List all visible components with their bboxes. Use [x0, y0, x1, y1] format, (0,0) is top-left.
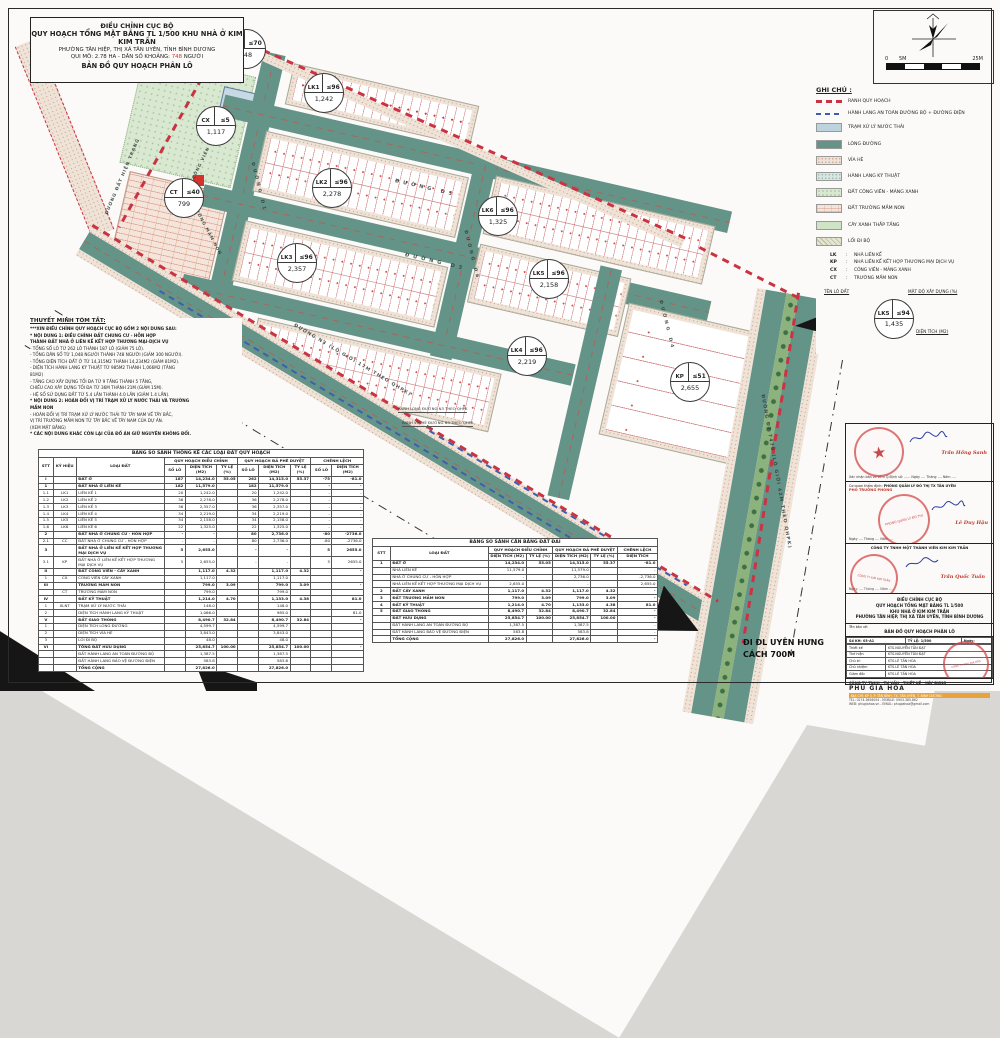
parcel-circle-lk6: LK6≤961,325: [478, 196, 518, 236]
callout-label: RANH VỈA HÈ ĐƯỜNG N3 THEO QHPK: [402, 420, 473, 427]
legend-item: LỐI ĐI BỘ: [816, 237, 998, 246]
legend-item: LÒNG ĐƯỜNG: [816, 140, 998, 149]
table-row: NHÀ LIÊN KẾ KẾT HỢP THƯƠNG MẠI DỊCH VỤ2,…: [373, 581, 658, 588]
authority-signature: [908, 430, 948, 446]
legend-item: CÂY XANH THẤP TẦNG: [816, 221, 998, 230]
parcel-circle-lk4: LK4≤962,219: [507, 336, 547, 376]
agency-sign-name: Lê Duy Hậu: [955, 520, 988, 526]
title-line4: QUI MÔ: 2.78 HA - DÂN SỐ KHOẢNG: 748 NGƯ…: [31, 54, 243, 60]
parcel-circle-kp: KP≤512,655: [670, 362, 710, 402]
table-row: IIĐẤT CÔNG VIÊN - CÂY XANH1,117.04.321,1…: [39, 568, 364, 575]
table-row: 3LỐI ĐI BỘ48.048.0: [39, 637, 364, 644]
callout-label: RANH LÒNG ĐƯỜNG N3 THEO QHPK: [398, 406, 467, 413]
notes-title: THUYẾT MINH TÓM TẮT:: [30, 318, 242, 324]
dashblue-swatch-icon: [816, 113, 842, 115]
title-block: ĐIỀU CHỈNH CỤC BỘ QUY HOẠCH TỔNG MẶT BẰN…: [30, 17, 244, 83]
authority-stamp: ★: [851, 424, 907, 480]
table-row: CTTRƯỜNG MẦM NON799.0799.0: [39, 589, 364, 596]
legend-item: ĐẤT TRƯỜNG MẦM NON: [816, 204, 998, 213]
table-row: 1.1LK1LIÊN KẾ 1201,242.0201,242.0--: [39, 490, 364, 497]
authority-sign-name: Trần Hồng Sanh: [941, 450, 987, 456]
agency-name: PHÒNG QUẢN LÝ ĐÔ THỊ TX TÂN UYÊN: [884, 484, 956, 488]
approval-drawing-name: Tên bản vẽ: BẢN ĐỒ QUY HOẠCH PHÂN LÔ: [846, 624, 993, 637]
note-line: - TỔNG SỐ LÔ TỪ 262 LÔ THÀNH 187 LÔ (GIẢ…: [30, 346, 242, 351]
table-row: 1.3LK3LIÊN KẾ 3362,357.0362,357.0--: [39, 504, 364, 511]
table-row: NHÀ LIÊN KẾ11,579.011,579.0-: [373, 567, 658, 574]
agency-signature: [930, 500, 966, 514]
approval-row-agency: Cơ quan thẩm định: PHÒNG QUẢN LÝ ĐÔ THỊ …: [846, 482, 993, 544]
roadc-swatch-icon: [816, 140, 842, 149]
legend-title: GHI CHÚ :: [816, 86, 998, 94]
approval-row-authority: ★ Trần Hồng Sanh Xác nhận bản vẽ kèm Q.Đ…: [846, 424, 993, 482]
note-line: VỊ TRÍ TRƯỜNG MẦM NON TỪ TÂY BẮC VỀ TÂY …: [30, 418, 242, 423]
parcel-circle-lk5: LK5≤962,158: [529, 259, 569, 299]
land-statistics-table: BẢNG SO SÁNH THỐNG KÊ CÁC LOẠI ĐẤT QUY H…: [38, 449, 364, 672]
legend-item: RANH QUY HOẠCH: [816, 99, 998, 104]
legend-item: VỈA HÈ: [816, 156, 998, 165]
legend-example-circle: LK5≤94 1,435: [874, 299, 914, 339]
note-line: * NỘI DUNG 2: HOÁN ĐỔI VỊ TRÍ TRẠM XỬ LÝ…: [30, 398, 242, 403]
legend-abbrev: CX:CÔNG VIÊN - MẢNG XANH: [816, 268, 998, 273]
direction-note: ĐI ĐL UYÊN HƯNG CÁCH 700M: [743, 637, 824, 661]
lowgreen-swatch-icon: [816, 221, 842, 230]
owner-stamp: CÔNG TY KIM KIM TRẦN: [846, 550, 902, 594]
table-row: 2DIỆN TÍCH HÀNH LANG KỸ THUẬT1,066.0985.…: [39, 610, 364, 617]
note-line: CHIỀU CAO XÂY DỰNG TỐI ĐA TỪ 36M THÀNH 2…: [30, 385, 242, 390]
owner-sign-name: Trần Quốc Tuấn: [941, 574, 986, 580]
note-line: - HOÁN ĐỔI VỊ TRÍ TRẠM XỬ LÝ NƯỚC THẢI T…: [30, 412, 242, 417]
tech-swatch-icon: [816, 172, 842, 181]
title-line1: ĐIỀU CHỈNH CỤC BỘ: [31, 22, 243, 30]
table-row: IĐẤT Ở18714,234.055.0526214,315.055.37-7…: [39, 476, 364, 483]
legend-abbrev: KP:NHÀ LIÊN KẾ KẾT HỢP THƯƠNG MẠI DỊCH V…: [816, 260, 998, 265]
company-web: WEB: phugiahoa.vn - EMAIL: phugiahoa@gma…: [849, 702, 990, 706]
parkland-swatch-icon: [816, 188, 842, 197]
brickp-swatch-icon: [816, 204, 842, 213]
legend-abbrevs: LK:NHÀ LIÊN KẾKP:NHÀ LIÊN KẾ KẾT HỢP THƯ…: [816, 253, 998, 281]
legend-panel: GHI CHÚ : RANH QUY HOẠCHHÀNH LANG AN TOÀ…: [816, 86, 998, 354]
table-row: TỔNG CỘNG27,826.027,826.0: [39, 665, 364, 672]
parcel-circle-lk1: LK1≤961,242: [304, 73, 344, 113]
sidewalk-swatch-icon: [816, 156, 842, 165]
table-row: TỔNG CỘNG27,826.027,826.0-: [373, 636, 658, 643]
legend-items: RANH QUY HOẠCHHÀNH LANG AN TOÀN ĐƯỜNG BỘ…: [816, 99, 998, 246]
title-line5: BẢN ĐỒ QUY HOẠCH PHÂN LÔ: [31, 62, 243, 70]
agency-stamp: PHÒNG QUẢN LÝ ĐÔ THỊ: [872, 488, 935, 544]
note-line: * NỘI DUNG 1: ĐIỀU CHỈNH ĐẤT CHUNG CƯ - …: [30, 333, 242, 338]
wwtp-swatch-icon: [816, 123, 842, 132]
table-row: ĐẤT HÀNH LANG AN TOÀN ĐƯỜNG BỘ1,387.51,3…: [39, 651, 364, 658]
note-line: THÀNH ĐẤT NHÀ Ở LIÊN KẾ KẾT HỢP THƯƠNG M…: [30, 339, 242, 344]
title-line2: QUY HOẠCH TỔNG MẶT BẰNG TL 1/500 KHU NHÀ…: [31, 30, 243, 46]
table-row: IIITRƯỜNG MẦM NON799.03.09799.03.09-: [39, 582, 364, 589]
table-row: 1CXCÔNG VIÊN CÂY XANH1,117.01,117.0: [39, 575, 364, 582]
parcel-circle-lk3: LK3≤962,357: [277, 243, 317, 283]
table-row: 3ĐẤT NHÀ Ở LIÊN KẾ KẾT HỢP THƯƠNG MẠI DỊ…: [39, 545, 364, 557]
agency-role: PHÓ TRƯỞNG PHÒNG: [846, 488, 993, 492]
approval-project-title: ĐIỀU CHỈNH CỤC BỘQUY HOẠCH TỔNG MẶT BẰNG…: [846, 594, 993, 624]
legend-item: HÀNH LANG AN TOÀN ĐƯỜNG BỘ + ĐƯỜNG ĐIỆN: [816, 111, 998, 116]
note-line: - TỔNG DÂN SỐ TỪ 1,048 NGƯỜI THÀNH 748 N…: [30, 352, 242, 357]
approval-block: ★ Trần Hồng Sanh Xác nhận bản vẽ kèm Q.Đ…: [845, 423, 994, 685]
table-row: ĐẤT HÀNH LANG BẢO VỆ ĐƯỜNG ĐIỆN583.8583.…: [39, 658, 364, 665]
parcel-circle-cx: CX≤51,117: [196, 106, 236, 146]
table-row: 4ĐẤT KỸ THUẬT1,214.04.701,133.04.3881.0: [373, 602, 658, 609]
table-row: 2DIỆN TÍCH VỈA HÈ3,843.03,843.0: [39, 630, 364, 637]
note-line: - TỔNG DIỆN TÍCH ĐẤT Ở TỪ 14,315M2 THÀNH…: [30, 359, 242, 364]
note-line: MẦM NON: [30, 405, 242, 410]
owner-name: CÔNG TY TNHH MỘT THÀNH VIÊN KIM KIM TRẦN: [846, 544, 993, 550]
north-box: 0 5M 25M: [873, 10, 994, 84]
table-row: 2ĐẤT NHÀ Ở CHUNG CƯ - HỖN HỢP--802,736.0…: [39, 531, 364, 538]
title-line3: PHƯỜNG TÂN HIỆP, THỊ XÃ TÂN UYÊN, TỈNH B…: [31, 47, 243, 53]
table-row: 3ĐẤT TRƯỜNG MẦM NON799.03.09799.03.09-: [373, 595, 658, 602]
table-row: 2.1CCĐẤT NHÀ Ở CHUNG CƯ - HỖN HỢP--802,7…: [39, 538, 364, 545]
legend-item: TRẠM XỬ LÝ NƯỚC THẢI: [816, 123, 998, 132]
owner-signature: [904, 556, 940, 570]
note-line: * CÁC NỘI DUNG KHÁC CÒN LẠI CỦA ĐỒ ÁN GI…: [30, 431, 242, 436]
walk-swatch-icon: [816, 237, 842, 246]
approval-roles: Số KH: 03-A1 TỶ LỆ: 1/500 Ngày: Thiết kế…: [846, 637, 993, 679]
table-row: IVĐẤT KỸ THUẬT1,214.04.701,133.04.3881.0: [39, 596, 364, 603]
note-line: (XEM MẶT BẰNG): [30, 425, 242, 430]
table-row: ĐẤT HỮU DỤNG25,854.7100.0025,854.7100.00…: [373, 615, 658, 622]
table-row: 5ĐẤT GIAO THÔNG8,490.732.848,490.732.84-: [373, 608, 658, 615]
table-row: NHÀ Ở CHUNG CƯ - HỖN HỢP-2,736.0-2,736.0: [373, 574, 658, 581]
legend-item: HÀNH LANG KỸ THUẬT: [816, 172, 998, 181]
parcel-circle-lk2: LK2≤962,278: [312, 168, 352, 208]
table-row: 1ĐẤT NHÀ Ở LIÊN KẾ18211,579.018211,579.0…: [39, 483, 364, 490]
land-balance-table: BẢNG SO SÁNH CÂN BẰNG ĐẤT ĐAI STT LOẠI Đ…: [372, 538, 658, 643]
note-line: - TẦNG CAO XÂY DỰNG TỐI ĐA TỪ 9 TẦNG THÀ…: [30, 379, 242, 384]
parcel-circle-ct: CT≤40799: [164, 178, 204, 218]
note-line: 81M2): [30, 372, 242, 377]
legend-abbrev: CT:TRƯỜNG MẦM NON: [816, 276, 998, 281]
note-line: - HỆ SỐ SỬ DỤNG ĐẤT TỪ 5.4 LẦN THÀNH 4.0…: [30, 392, 242, 397]
table-row: 1XLNTTRẠM XỬ LÝ NƯỚC THẢI148.0148.0: [39, 603, 364, 610]
scale-bar: 0 5M 25M: [886, 63, 980, 70]
population-value: 748: [172, 54, 182, 60]
note-line: - DIỆN TÍCH HÀNH LANG KỸ THUẬT TỪ 985M2 …: [30, 365, 242, 370]
dashred-swatch-icon: [816, 100, 842, 103]
table-row: ĐẤT HÀNH LANG AN TOÀN ĐƯỜNG BỘ1,387.51,3…: [373, 622, 658, 629]
legend-item: ĐẤT CÔNG VIÊN - MẢNG XANH: [816, 188, 998, 197]
table-row: 1.6LK6LIÊN KẾ 6221,325.0221,325.0--: [39, 524, 364, 531]
table-row: 1DIỆN TÍCH LÒNG ĐƯỜNG4,599.74,599.7: [39, 623, 364, 630]
approval-row-owner: CÔNG TY TNHH MỘT THÀNH VIÊN KIM KIM TRẦN…: [846, 544, 993, 594]
table-row: 3.1KPĐẤT NHÀ Ở LIÊN KẾ KẾT HỢP THƯƠNG MẠ…: [39, 557, 364, 569]
legend-symbol-key: TÊN LÔ ĐẤT MẬT ĐỘ XÂY DỰNG (%) DIỆN TÍCH…: [816, 287, 998, 347]
table-row: ĐẤT HÀNH LANG BẢO VỆ ĐƯỜNG ĐIỆN583.8583.…: [373, 629, 658, 636]
note-line: ***XIN ĐIỀU CHỈNH QUY HOẠCH CỤC BỘ GỒM 2…: [30, 326, 242, 331]
notes-panel: THUYẾT MINH TÓM TẮT: ***XIN ĐIỀU CHỈNH Q…: [30, 318, 242, 448]
table-row: VITỔNG ĐẤT HỮU DỤNG25,854.7100.0025,854.…: [39, 644, 364, 651]
legend-abbrev: LK:NHÀ LIÊN KẾ: [816, 253, 998, 258]
table-row: VĐẤT GIAO THÔNG8,490.732.848,490.732.84-: [39, 617, 364, 624]
table-row: 1.2LK2LIÊN KẾ 2362,278.0362,278.0--: [39, 497, 364, 504]
north-compass-icon: [874, 13, 993, 59]
consultant-company: CÔNG TY TNHH - TƯ VẤN - THIẾT KẾ - XÂY D…: [846, 679, 993, 708]
table-row: 2ĐẤT CÂY XANH1,117.04.321,117.04.32-: [373, 588, 658, 595]
plan-sheet: XLNT: [0, 0, 1000, 691]
